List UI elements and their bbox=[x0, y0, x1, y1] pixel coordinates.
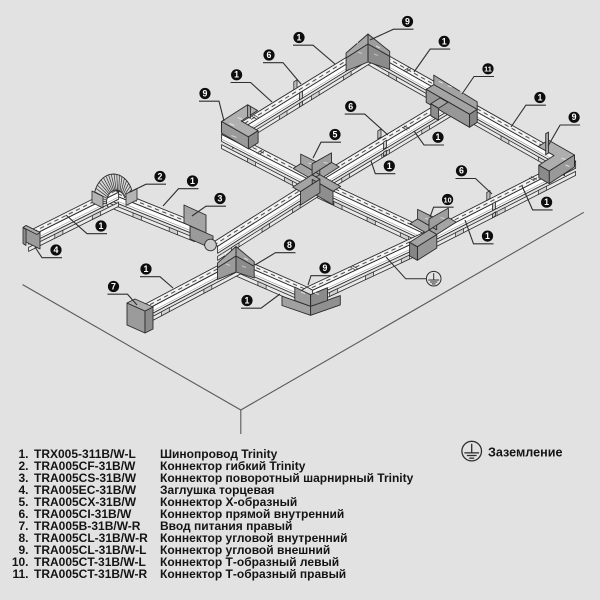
svg-text:1: 1 bbox=[245, 295, 250, 305]
svg-text:1: 1 bbox=[144, 264, 149, 274]
svg-text:TRA005CT-31B/W-R: TRA005CT-31B/W-R bbox=[34, 567, 147, 581]
svg-text:9: 9 bbox=[572, 112, 577, 122]
svg-text:1: 1 bbox=[297, 32, 302, 42]
svg-text:1: 1 bbox=[387, 161, 392, 171]
svg-text:2: 2 bbox=[158, 171, 163, 181]
svg-text:1: 1 bbox=[485, 231, 490, 241]
svg-text:11: 11 bbox=[484, 65, 492, 74]
svg-text:1: 1 bbox=[537, 92, 542, 102]
svg-text:9: 9 bbox=[405, 16, 410, 26]
svg-text:Коннектор Т-образный правый: Коннектор Т-образный правый bbox=[160, 567, 346, 581]
svg-text:6: 6 bbox=[267, 50, 272, 60]
svg-text:10: 10 bbox=[444, 195, 452, 204]
svg-text:1: 1 bbox=[190, 176, 195, 186]
svg-text:9: 9 bbox=[203, 88, 208, 98]
svg-text:6: 6 bbox=[348, 101, 353, 111]
svg-text:11.: 11. bbox=[12, 567, 28, 581]
svg-text:1: 1 bbox=[544, 197, 549, 207]
svg-text:3: 3 bbox=[218, 193, 223, 203]
svg-text:9: 9 bbox=[323, 263, 328, 273]
svg-text:1: 1 bbox=[442, 36, 447, 46]
svg-text:6: 6 bbox=[459, 166, 464, 176]
svg-text:1: 1 bbox=[99, 221, 104, 231]
svg-text:5: 5 bbox=[333, 129, 338, 139]
svg-text:7: 7 bbox=[111, 281, 116, 291]
svg-text:8: 8 bbox=[287, 240, 292, 250]
svg-text:Заземление: Заземление bbox=[488, 446, 563, 460]
svg-text:1: 1 bbox=[436, 132, 441, 142]
svg-text:4: 4 bbox=[54, 245, 59, 255]
svg-text:1: 1 bbox=[234, 70, 239, 80]
